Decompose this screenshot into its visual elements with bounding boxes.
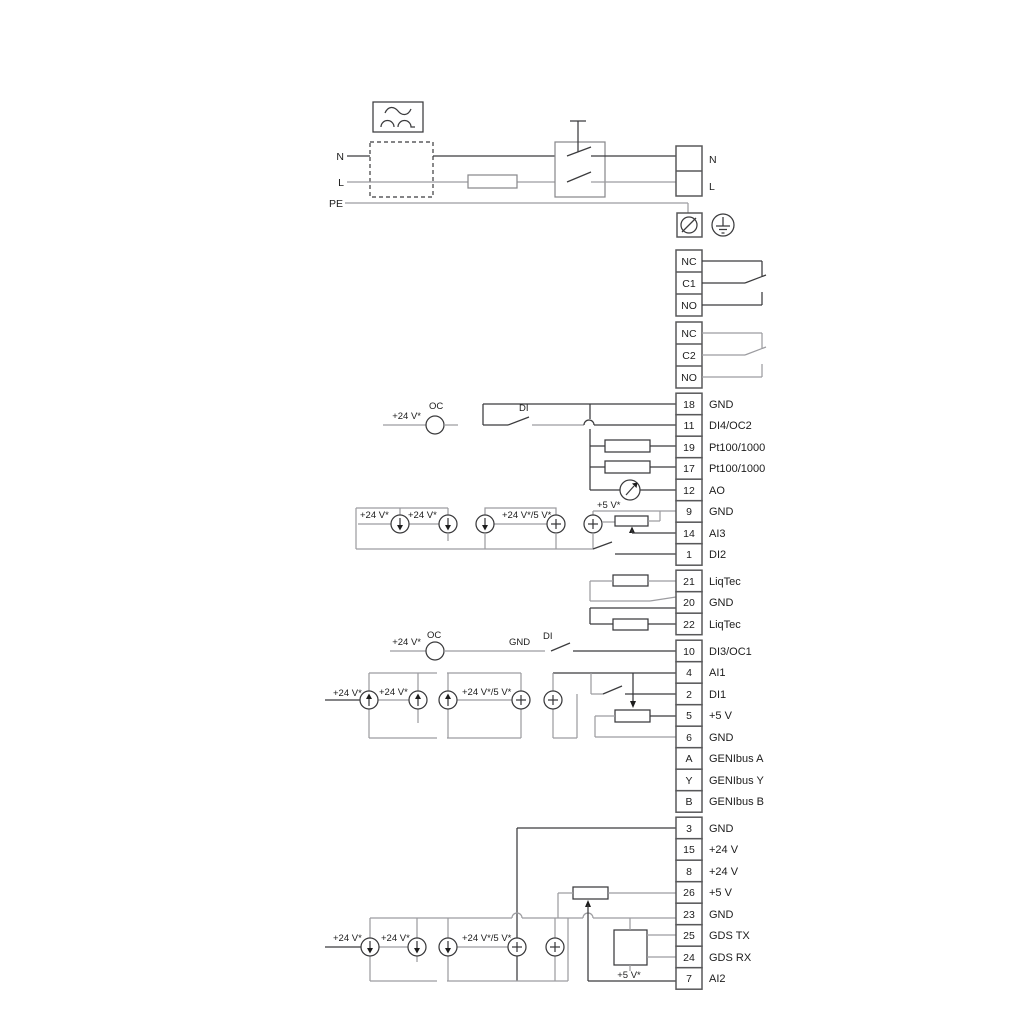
terminal-group-4: 3GND 15+24 V 8+24 V 26+5 V 23GND 25GDS T… (676, 817, 752, 989)
terminal-number: 24 (683, 952, 695, 964)
terminal-number: 4 (686, 667, 692, 679)
terminal-label: GND (709, 506, 734, 518)
terminal-number: 6 (686, 732, 692, 744)
wire-label-24v: +24 V* (333, 933, 362, 944)
terminal-label: LiqTec (709, 619, 741, 631)
potentiometer (615, 710, 650, 722)
terminal-label: GND (709, 597, 734, 609)
wire-label-di: DI (519, 403, 529, 414)
terminal-label: Pt100/1000 (709, 442, 765, 454)
terminal-label: DI2 (709, 549, 726, 561)
wire-label-24v-5v: +24 V*/5 V* (462, 933, 512, 944)
relay1-no: NO (681, 300, 697, 312)
di-switch-contact (508, 417, 529, 425)
wire-label-24v-5v: +24 V*/5 V* (462, 687, 512, 698)
terminal-number: 3 (686, 823, 692, 835)
n-out-label: N (709, 154, 717, 166)
wiring-diagram-svg: N L PE N L N (0, 0, 1024, 1024)
gds-sensor-box (614, 930, 647, 965)
ai3-wiring: +24 V* +24 V* +24 V*/5 V* +5 V* (356, 500, 676, 554)
terminal-number: 22 (683, 619, 695, 631)
terminal-number: 11 (684, 420, 695, 432)
open-collector-icon (426, 642, 444, 660)
l-out-label: L (709, 181, 715, 193)
terminal-label: GND (709, 399, 734, 411)
di3-oc1-wiring: +24 V* OC GND DI (390, 630, 676, 660)
terminal-label: +5 V (709, 710, 733, 722)
terminal-number: 8 (686, 866, 692, 878)
terminal-label: DI4/OC2 (709, 420, 752, 432)
terminal-label: +24 V (709, 866, 739, 878)
relay-2: NC C2 NO (676, 322, 766, 388)
terminal-number: A (685, 753, 692, 765)
relay-1: NC C1 NO (676, 250, 766, 316)
relay2-contact (745, 347, 766, 355)
resistor-liqtec (613, 575, 648, 586)
wiper-arrow-icon (630, 701, 636, 708)
terminal-number: 15 (683, 844, 695, 856)
wire-label-oc: OC (429, 401, 443, 412)
wire-label-24v: +24 V* (392, 637, 421, 648)
relay2-nc: NC (681, 328, 697, 340)
open-collector-icon (426, 416, 444, 434)
terminal-label: GDS TX (709, 930, 750, 942)
wire-label-24v-5v: +24 V*/5 V* (502, 510, 552, 521)
terminal-label: DI3/OC1 (709, 646, 752, 658)
di1-switch-contact (603, 686, 622, 694)
power-section: N L PE N L (329, 102, 734, 237)
terminal-number: 23 (683, 909, 695, 921)
terminal-label: LiqTec (709, 576, 741, 588)
filter-dashed-box (370, 142, 433, 197)
terminal-label: DI1 (709, 689, 726, 701)
ai2-gds-wiring: +24 V* +24 V* +24 V*/5 V* +5 V* (325, 828, 676, 981)
terminal-number: Y (685, 775, 692, 787)
terminal-number: 21 (683, 576, 695, 588)
terminal-number: 19 (683, 442, 695, 454)
wire-label-5v: +5 V* (617, 970, 641, 981)
terminal-label: GDS RX (709, 952, 752, 964)
ai1-di1-wiring: +24 V* +24 V* +24 V*/5 V* (325, 673, 676, 738)
terminal-number: 1 (686, 549, 692, 561)
potentiometer (615, 516, 648, 526)
relay2-c2: C2 (682, 350, 696, 362)
terminal-label: GND (709, 909, 734, 921)
terminal-number: 2 (686, 689, 692, 701)
wire-label-24v: +24 V* (379, 687, 408, 698)
wire-label-di: DI (543, 631, 553, 642)
di4-oc2-wiring: +24 V* OC DI (383, 401, 676, 500)
terminal-strip: 18GND 11DI4/OC2 19Pt100/1000 17Pt100/100… (676, 393, 765, 989)
terminal-label: Pt100/1000 (709, 463, 765, 475)
terminal-group-3: 10DI3/OC1 4AI1 2DI1 5+5 V 6GND AGENIbus … (676, 640, 764, 812)
terminal-label: AI1 (709, 667, 726, 679)
wire-label-gnd: GND (509, 637, 530, 648)
terminal-number: 7 (686, 973, 692, 985)
resistor-pt100 (605, 440, 650, 452)
terminal-number: 25 (683, 930, 695, 942)
wire-label-24v: +24 V* (333, 688, 362, 699)
main-switch-box (555, 142, 605, 197)
terminal-number: B (685, 796, 692, 808)
fuse-icon (468, 175, 517, 188)
terminal-label: GND (709, 732, 734, 744)
pe-label: PE (329, 198, 343, 210)
di2-switch-contact (593, 542, 612, 549)
wire-label-24v: +24 V* (392, 411, 421, 422)
relay1-c1: C1 (682, 278, 696, 290)
wire-label-oc: OC (427, 630, 441, 641)
terminal-number: 14 (683, 528, 695, 540)
terminal-label: GENIbus A (709, 753, 764, 765)
relay2-no: NO (681, 372, 697, 384)
terminal-number: 26 (683, 887, 695, 899)
ac-waveform-box (373, 102, 423, 132)
terminal-label: GND (709, 823, 734, 835)
terminal-number: 12 (683, 485, 695, 497)
terminal-label: +24 V (709, 844, 739, 856)
terminal-group-2: 21LiqTec 20GND 22LiqTec (676, 570, 741, 635)
n-in-label: N (336, 151, 344, 163)
wire-label-5v: +5 V* (597, 500, 621, 511)
wiring-diagram: N L PE N L N (0, 0, 1024, 1024)
relay1-nc: NC (681, 256, 697, 268)
l-in-label: L (338, 177, 344, 189)
wire-label-24v: +24 V* (381, 933, 410, 944)
terminal-number: 17 (683, 463, 695, 475)
terminal-label: GENIbus Y (709, 775, 764, 787)
liqtec-wiring (590, 575, 676, 630)
terminal-label: +5 V (709, 887, 733, 899)
resistor-liqtec (613, 619, 648, 630)
wire-hop (584, 420, 594, 425)
potentiometer (573, 887, 608, 899)
terminal-label: AO (709, 485, 725, 497)
wire-label-24v: +24 V* (408, 510, 437, 521)
wire-label-24v: +24 V* (360, 510, 389, 521)
terminal-number: 18 (683, 399, 695, 411)
terminal-number: 5 (686, 710, 692, 722)
terminal-label: AI2 (709, 973, 726, 985)
resistor-pt100 (605, 461, 650, 473)
terminal-group-1: 18GND 11DI4/OC2 19Pt100/1000 17Pt100/100… (676, 393, 765, 565)
terminal-number: 20 (683, 597, 695, 609)
relay1-contact (745, 275, 766, 283)
terminal-number: 10 (683, 646, 695, 658)
terminal-label: AI3 (709, 528, 726, 540)
di3-switch-contact (551, 643, 570, 651)
terminal-label: GENIbus B (709, 796, 764, 808)
terminal-number: 9 (686, 506, 692, 518)
